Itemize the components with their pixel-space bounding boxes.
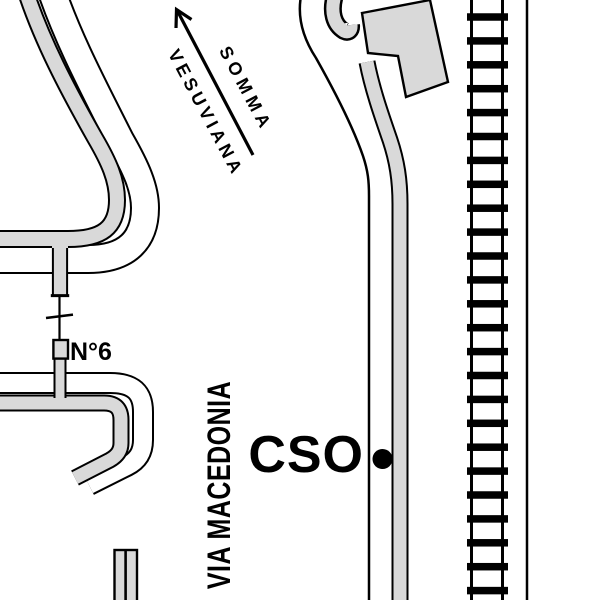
label-house-number: N°6 (70, 338, 112, 366)
n6-box (53, 340, 68, 359)
label-via-macedonia: VIA MACEDONIA (202, 381, 238, 589)
hook-road (0, 383, 143, 485)
corso-left-edge (300, 0, 369, 600)
loop-road (0, 0, 145, 259)
map-canvas: SOMMA VESUVIANA N°6 VIA MACEDONIA CSO (0, 0, 600, 600)
railway-tie (467, 467, 508, 475)
railway-tie (467, 491, 508, 499)
station-marker-dot (373, 449, 393, 469)
label-somma: SOMMA (215, 43, 277, 135)
railway-tie (467, 348, 508, 356)
railway-tie (467, 204, 508, 212)
loop-road-lane (0, 0, 145, 259)
railway-tie (467, 109, 508, 117)
railway-track (467, 0, 508, 600)
railway-tie (467, 228, 508, 236)
path-to-n6 (46, 296, 73, 342)
ramp-hook (333, 0, 351, 32)
railway-tie (467, 13, 508, 21)
railway-tie (467, 539, 508, 547)
railway-tie (467, 276, 508, 284)
railway-tie (467, 372, 508, 380)
stub-fill (54, 358, 66, 400)
railway-tie (467, 587, 508, 595)
railway-tie (467, 563, 508, 571)
railway-tie (467, 85, 508, 93)
railway-tie (467, 420, 508, 428)
railway-tie (467, 37, 508, 45)
railway-tie (467, 181, 508, 189)
stub-fill (52, 242, 68, 295)
hook-road-band (0, 403, 121, 478)
south-road-stub (115, 550, 138, 600)
railway-tie (467, 443, 508, 451)
corso-road (300, 0, 400, 600)
street-map: SOMMA VESUVIANA N°6 VIA MACEDONIA CSO (0, 0, 600, 600)
railway-tie (467, 157, 508, 165)
junction-stub-lower (54, 358, 66, 400)
cross-tick (46, 315, 73, 318)
railway-tie (467, 396, 508, 404)
railway-tie (467, 252, 508, 260)
junction-stub-upper (51, 242, 69, 296)
railway-tie (467, 300, 508, 308)
railway-tie (467, 133, 508, 141)
railway-tie (467, 61, 508, 69)
label-station: CSO (248, 426, 364, 484)
railway-tie (467, 324, 508, 332)
railway-tie (467, 515, 508, 523)
